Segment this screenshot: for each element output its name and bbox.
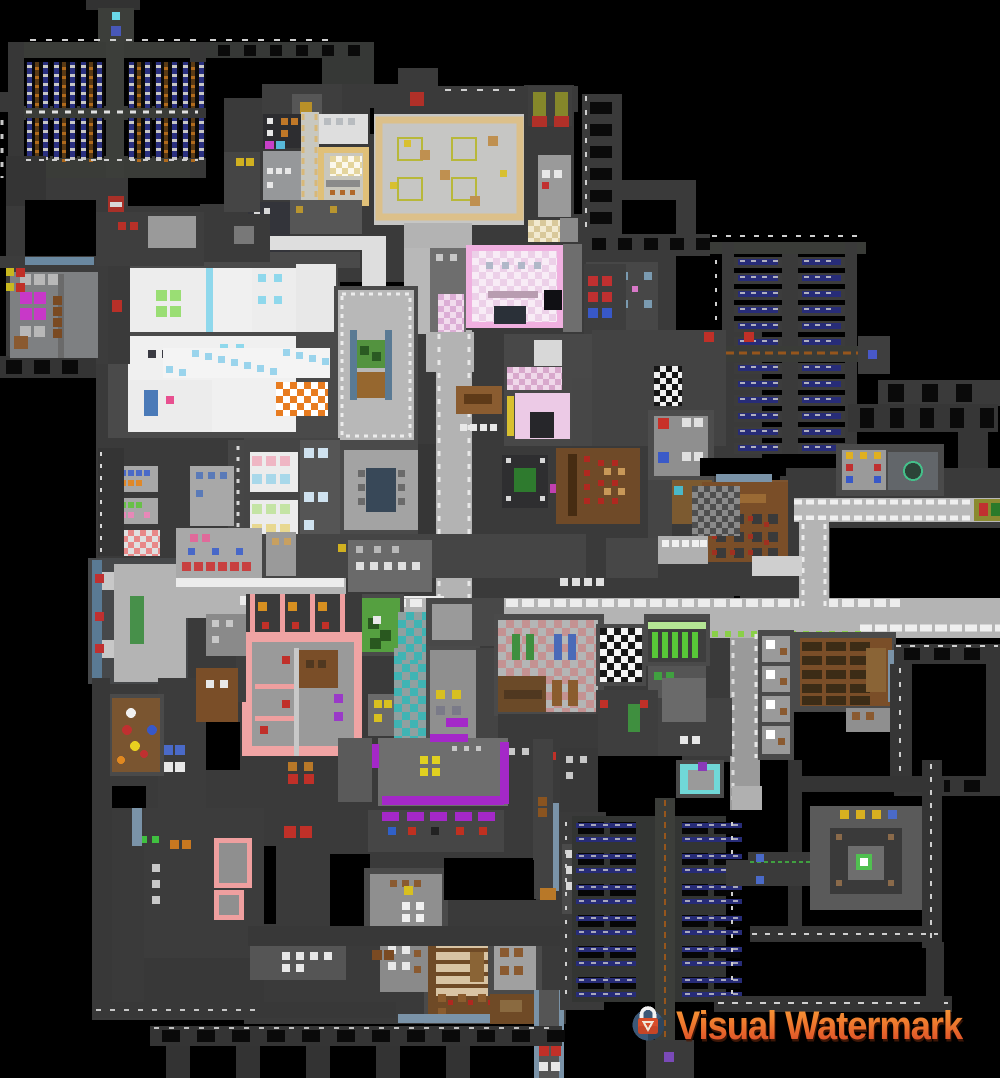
- svg-text:Visual Watermark: Visual Watermark: [676, 1004, 964, 1048]
